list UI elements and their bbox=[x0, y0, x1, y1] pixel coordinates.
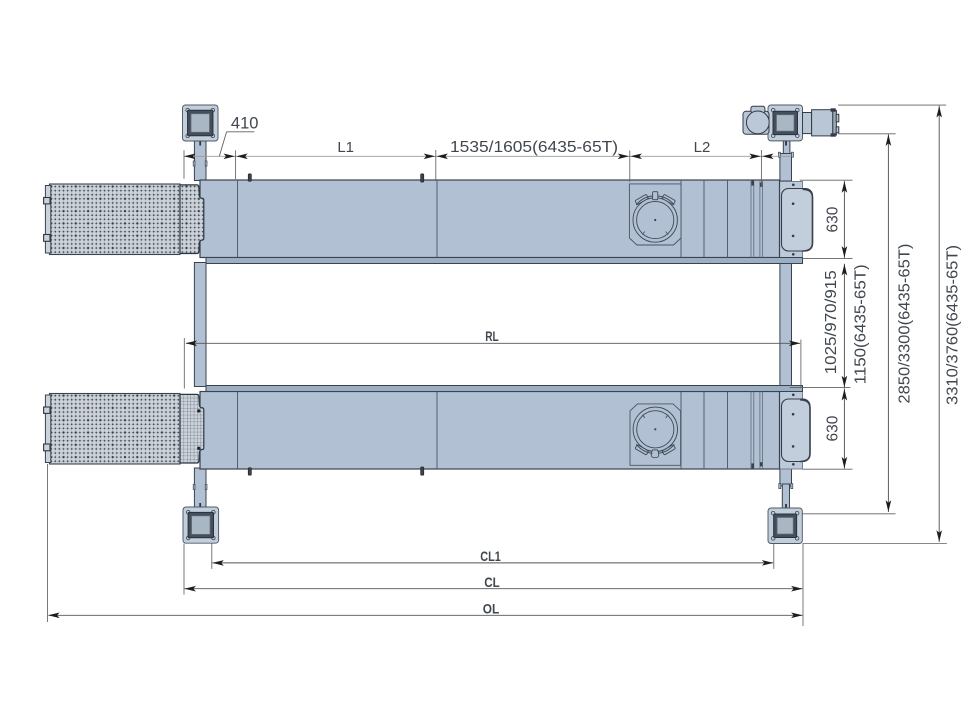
svg-text:RL: RL bbox=[485, 328, 499, 344]
svg-text:L2: L2 bbox=[694, 139, 711, 156]
svg-text:630: 630 bbox=[825, 206, 842, 232]
svg-text:L1: L1 bbox=[337, 139, 354, 156]
svg-text:1150(6435-65T): 1150(6435-65T) bbox=[853, 264, 870, 384]
svg-text:CL: CL bbox=[484, 574, 500, 590]
svg-text:CL1: CL1 bbox=[480, 548, 501, 564]
svg-text:2850/3300(6435-65T): 2850/3300(6435-65T) bbox=[897, 244, 914, 404]
svg-text:630: 630 bbox=[825, 415, 842, 441]
svg-text:1025/970/915: 1025/970/915 bbox=[823, 270, 840, 374]
svg-text:410: 410 bbox=[231, 115, 259, 133]
svg-text:3310/3760(6435-65T): 3310/3760(6435-65T) bbox=[945, 245, 962, 405]
svg-text:1535/1605(6435-65T): 1535/1605(6435-65T) bbox=[450, 139, 618, 156]
svg-text:OL: OL bbox=[483, 600, 500, 616]
